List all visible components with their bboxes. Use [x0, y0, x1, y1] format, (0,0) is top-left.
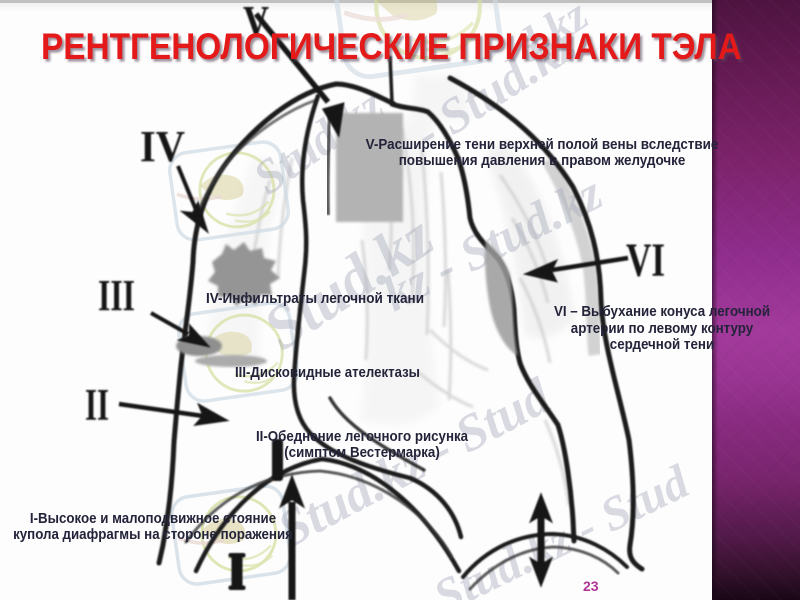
- svg-text:II: II: [85, 380, 109, 430]
- svg-text:Stud.kz - Stud: Stud.kz - Stud: [426, 455, 698, 600]
- svg-text:VI: VI: [626, 234, 665, 287]
- svg-text:IV: IV: [140, 122, 185, 171]
- svg-text:III: III: [98, 271, 135, 320]
